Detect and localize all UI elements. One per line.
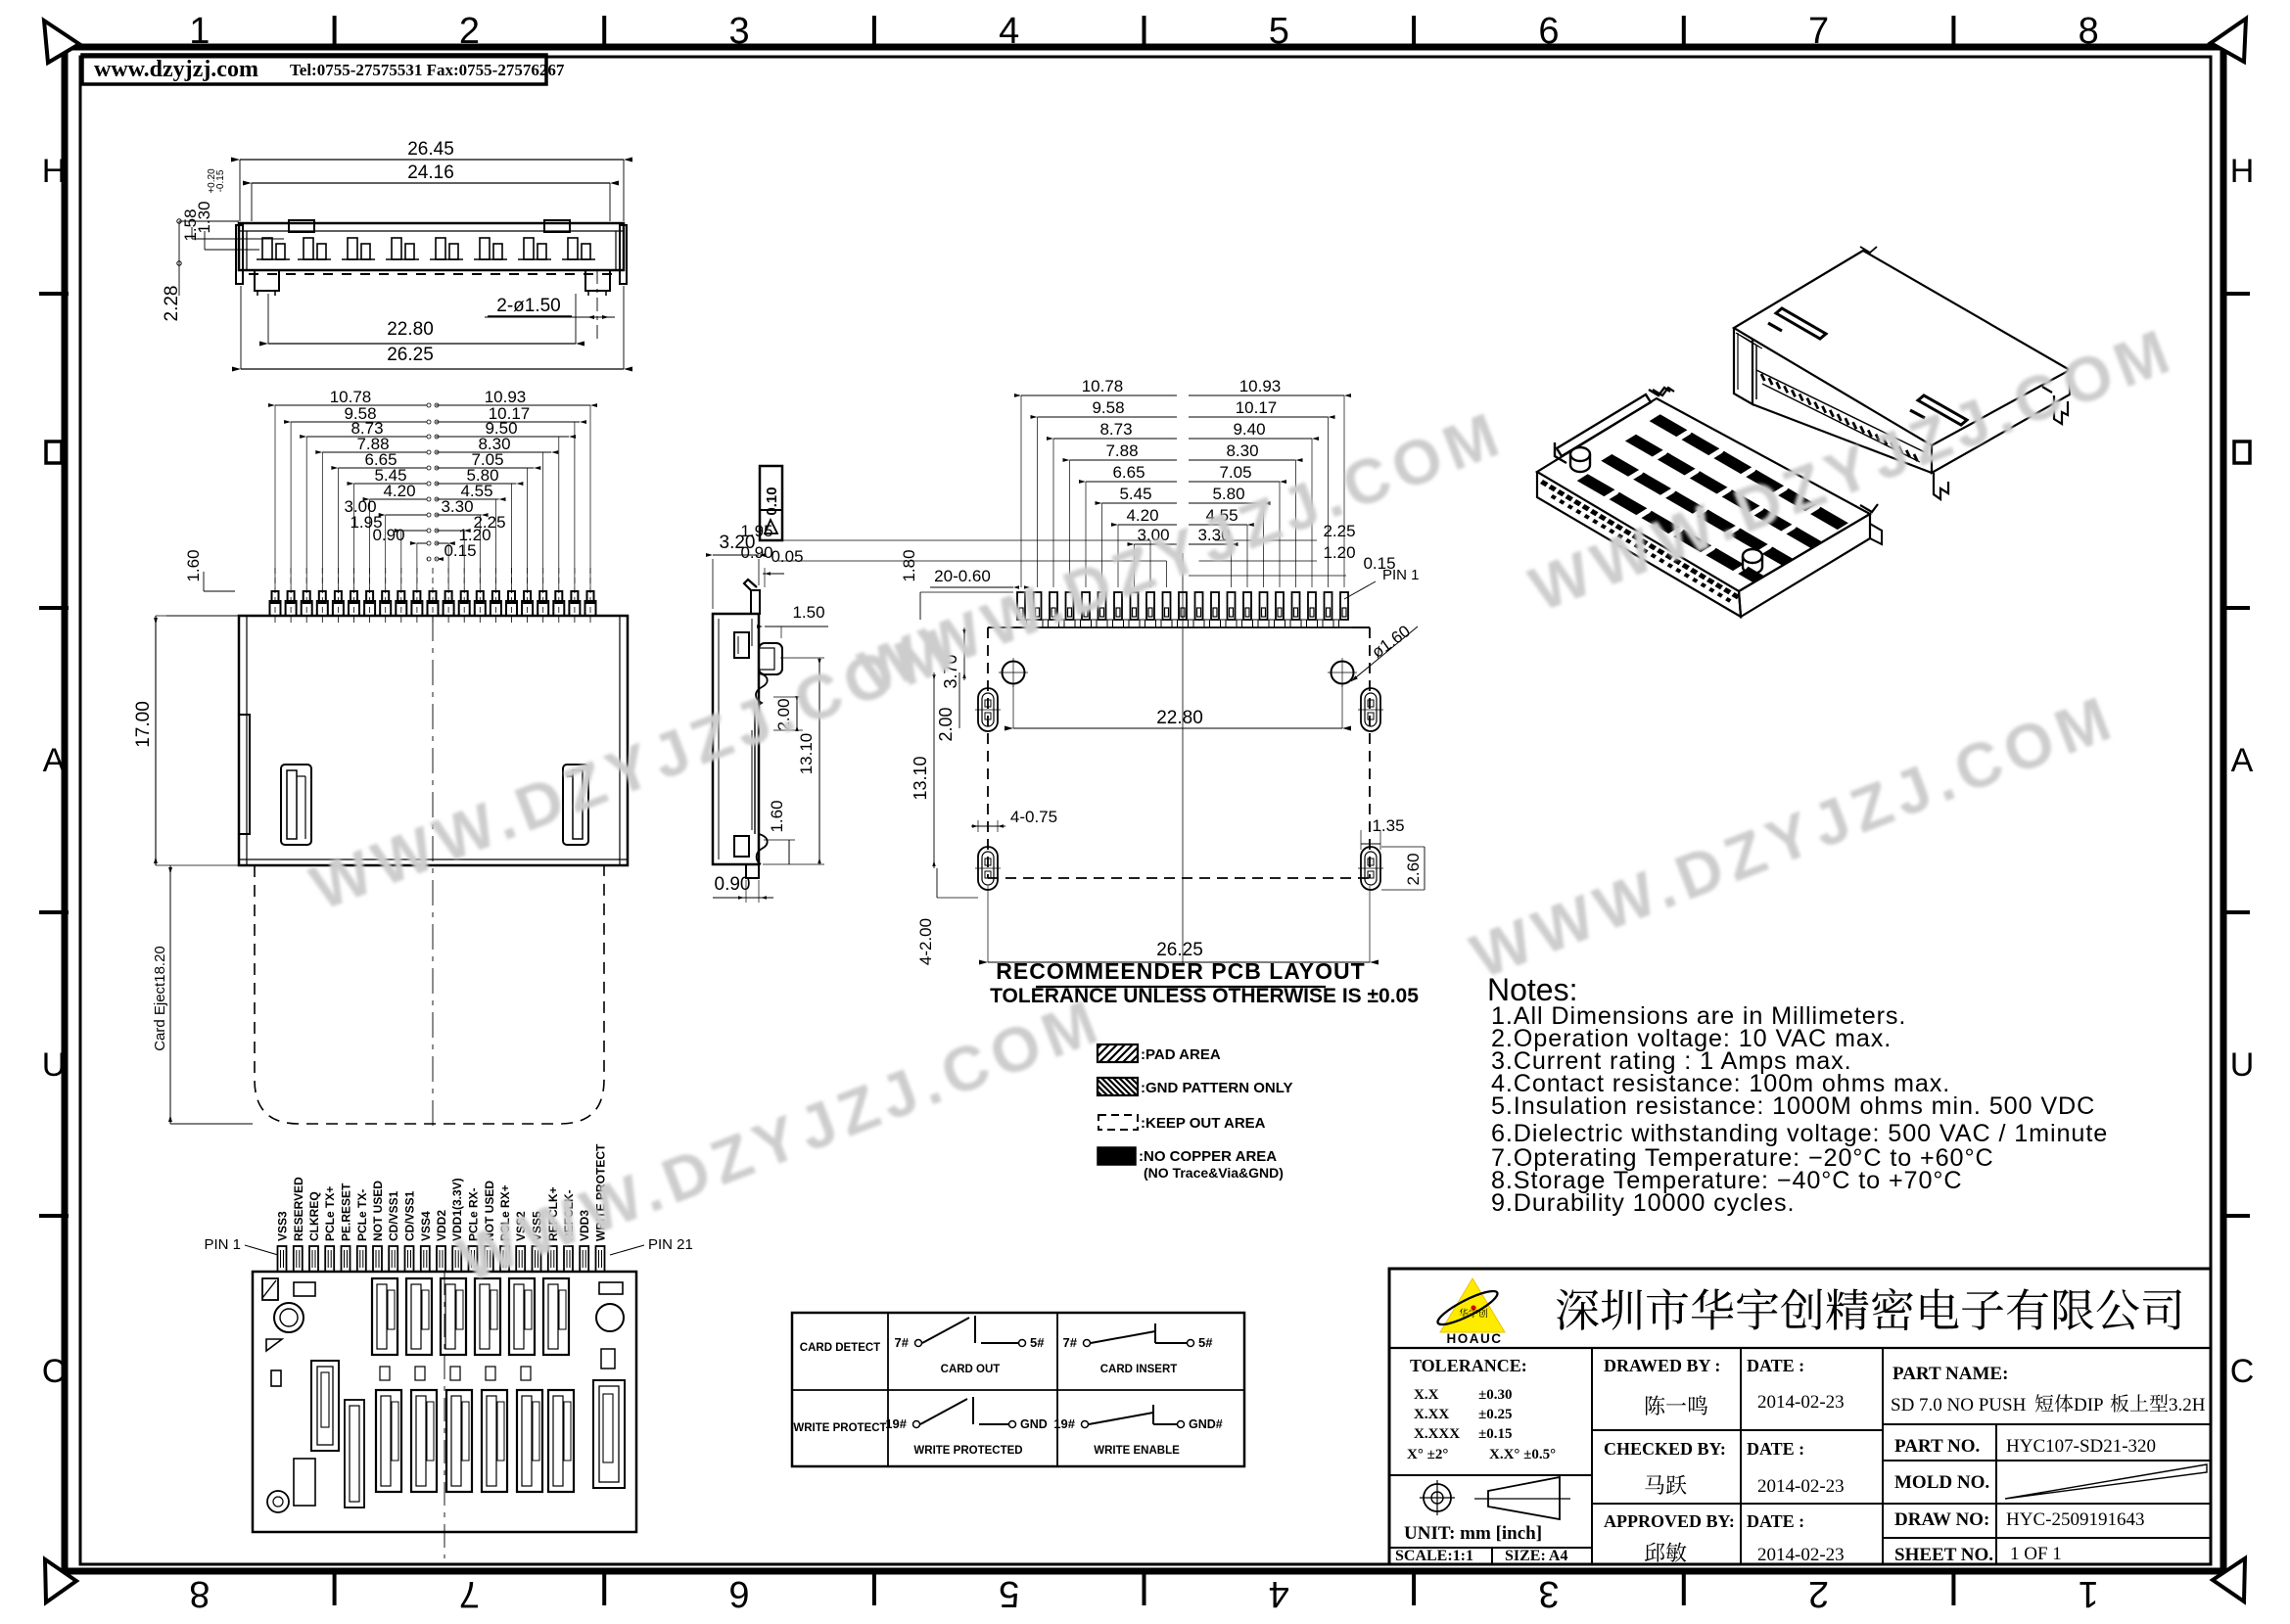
svg-text:1.30: 1.30 bbox=[195, 201, 213, 233]
svg-text:0.90: 0.90 bbox=[715, 874, 751, 895]
svg-text:1.20: 1.20 bbox=[1323, 543, 1355, 562]
svg-text::KEEP OUT AREA: :KEEP OUT AREA bbox=[1141, 1115, 1266, 1132]
svg-text:A: A bbox=[2231, 742, 2254, 779]
svg-text:4: 4 bbox=[1269, 1573, 1289, 1614]
svg-text:DATE :: DATE : bbox=[1747, 1439, 1804, 1459]
svg-text::NO COPPER AREA: :NO COPPER AREA bbox=[1139, 1148, 1277, 1165]
svg-text:2014-02-23: 2014-02-23 bbox=[1757, 1545, 1845, 1565]
svg-text:24.16: 24.16 bbox=[407, 162, 454, 183]
svg-text:VSS3: VSS3 bbox=[276, 1211, 290, 1241]
svg-text:0.10: 0.10 bbox=[764, 487, 780, 515]
svg-text:PE.RESET: PE.RESET bbox=[340, 1183, 353, 1241]
svg-text:8.30: 8.30 bbox=[1226, 441, 1258, 460]
svg-text:3.30: 3.30 bbox=[441, 497, 473, 516]
svg-text:X.X: X.X bbox=[1414, 1387, 1439, 1403]
svg-text:HYC107-SD21-320: HYC107-SD21-320 bbox=[2006, 1436, 2156, 1457]
svg-text:9.Durability 10000 cycles.: 9.Durability 10000 cycles. bbox=[1491, 1189, 1795, 1217]
svg-text:±0.15: ±0.15 bbox=[1478, 1426, 1512, 1442]
svg-text::PAD AREA: :PAD AREA bbox=[1141, 1046, 1221, 1063]
svg-text:20-0.60: 20-0.60 bbox=[934, 567, 991, 585]
svg-text:CD/VSS1: CD/VSS1 bbox=[387, 1190, 400, 1241]
svg-text:13.10: 13.10 bbox=[911, 756, 930, 800]
svg-text:PIN 21: PIN 21 bbox=[648, 1236, 693, 1253]
svg-text:5.45: 5.45 bbox=[1119, 485, 1151, 503]
svg-text:HYC-2509191643: HYC-2509191643 bbox=[2006, 1509, 2144, 1530]
svg-text:1.60: 1.60 bbox=[768, 800, 786, 832]
svg-text:3: 3 bbox=[1538, 1573, 1559, 1614]
svg-text:PART NO.: PART NO. bbox=[1894, 1436, 1980, 1457]
svg-text:2: 2 bbox=[459, 11, 480, 52]
svg-text:www.dzyjzj.com: www.dzyjzj.com bbox=[94, 57, 258, 82]
svg-text:WRITE PROTECTED: WRITE PROTECTED bbox=[913, 1445, 1022, 1457]
svg-text:7: 7 bbox=[1808, 11, 1829, 52]
svg-text::GND PATTERN ONLY: :GND PATTERN ONLY bbox=[1141, 1080, 1293, 1096]
svg-text:X.XXX: X.XXX bbox=[1414, 1426, 1460, 1442]
svg-text:(NO Trace&Via&GND): (NO Trace&Via&GND) bbox=[1144, 1165, 1284, 1181]
svg-text:17.00: 17.00 bbox=[133, 701, 154, 748]
svg-text:PCLe TX+: PCLe TX+ bbox=[323, 1186, 337, 1241]
svg-text:3: 3 bbox=[729, 11, 750, 52]
svg-text:VSS4: VSS4 bbox=[419, 1211, 433, 1241]
svg-text:CHECKED BY:: CHECKED BY: bbox=[1604, 1439, 1726, 1459]
svg-text:±0.25: ±0.25 bbox=[1478, 1407, 1512, 1422]
svg-text:26.25: 26.25 bbox=[1156, 940, 1203, 960]
svg-text:1.60: 1.60 bbox=[184, 549, 203, 581]
svg-text:PIN 1: PIN 1 bbox=[204, 1236, 241, 1253]
svg-text:1.35: 1.35 bbox=[1372, 816, 1404, 835]
svg-text:CD/VSS1: CD/VSS1 bbox=[403, 1190, 417, 1241]
svg-text:6.65: 6.65 bbox=[1112, 463, 1145, 482]
svg-text:1.50: 1.50 bbox=[792, 603, 824, 622]
svg-text:WRITE PROTECT: WRITE PROTECT bbox=[793, 1422, 886, 1434]
svg-text:HOAUC: HOAUC bbox=[1447, 1331, 1503, 1346]
svg-text:CLKREQ: CLKREQ bbox=[307, 1191, 321, 1241]
svg-text:3.2H: 3.2H bbox=[2169, 1395, 2206, 1415]
svg-text:VDD2: VDD2 bbox=[435, 1210, 448, 1241]
svg-text:9.58: 9.58 bbox=[1092, 398, 1124, 417]
svg-text:DRAWED BY :: DRAWED BY : bbox=[1604, 1356, 1720, 1375]
svg-text:H: H bbox=[42, 153, 67, 190]
svg-text:C: C bbox=[2230, 1353, 2255, 1390]
svg-text:Tel:0755-27575531 Fax:0755-27: Tel:0755-27575531 Fax:0755-27576267 bbox=[290, 61, 565, 79]
svg-text:4-0.75: 4-0.75 bbox=[1010, 808, 1057, 826]
svg-text:0.90: 0.90 bbox=[740, 543, 772, 562]
svg-text:C: C bbox=[42, 1353, 67, 1390]
svg-text:10.93: 10.93 bbox=[1239, 377, 1282, 395]
svg-text:5: 5 bbox=[1269, 11, 1289, 52]
svg-text:0.05: 0.05 bbox=[771, 547, 803, 566]
svg-text:7: 7 bbox=[459, 1573, 480, 1614]
svg-text:-0.15: -0.15 bbox=[215, 169, 226, 192]
svg-text:8.73: 8.73 bbox=[1099, 420, 1132, 439]
svg-text:8: 8 bbox=[2079, 11, 2099, 52]
svg-text:TOLERANCE:: TOLERANCE: bbox=[1410, 1356, 1527, 1375]
svg-text:7.88: 7.88 bbox=[1105, 441, 1138, 460]
svg-text:UNIT: mm [inch]: UNIT: mm [inch] bbox=[1404, 1523, 1542, 1544]
svg-text:PCLe TX-: PCLe TX- bbox=[355, 1189, 369, 1241]
svg-text:CARD OUT: CARD OUT bbox=[941, 1364, 1001, 1375]
svg-text:4: 4 bbox=[999, 11, 1019, 52]
svg-text:X° ±2°: X° ±2° bbox=[1407, 1447, 1448, 1462]
svg-text:CARD DETECT: CARD DETECT bbox=[800, 1342, 880, 1354]
svg-text:GND#: GND# bbox=[1189, 1417, 1223, 1431]
svg-text:1 OF 1: 1 OF 1 bbox=[2010, 1544, 2062, 1564]
svg-text:1: 1 bbox=[2079, 1573, 2099, 1614]
svg-text:SCALE:1:1: SCALE:1:1 bbox=[1395, 1548, 1473, 1564]
svg-text:Card Eject18.20: Card Eject18.20 bbox=[152, 946, 168, 1051]
svg-text:7.05: 7.05 bbox=[1219, 463, 1251, 482]
svg-text:RESERVED: RESERVED bbox=[292, 1177, 305, 1241]
svg-text:H: H bbox=[2230, 153, 2255, 190]
svg-text:DRAW NO:: DRAW NO: bbox=[1894, 1509, 1989, 1530]
svg-text:APPROVED BY:: APPROVED BY: bbox=[1604, 1511, 1735, 1531]
svg-text:U: U bbox=[2230, 1046, 2255, 1084]
svg-text:6: 6 bbox=[1538, 11, 1559, 52]
svg-text:26.45: 26.45 bbox=[407, 139, 454, 160]
svg-text:PIN 1: PIN 1 bbox=[1382, 567, 1420, 583]
svg-text:RECOMMEENDER PCB LAYOUT: RECOMMEENDER PCB LAYOUT bbox=[996, 958, 1365, 984]
svg-text:10.78: 10.78 bbox=[1082, 377, 1124, 395]
svg-text:WRITE ENABLE: WRITE ENABLE bbox=[1094, 1445, 1180, 1457]
svg-text:5: 5 bbox=[999, 1573, 1019, 1614]
svg-text:A: A bbox=[43, 742, 66, 779]
svg-text:DATE :: DATE : bbox=[1747, 1356, 1804, 1375]
svg-text:2014-02-23: 2014-02-23 bbox=[1757, 1476, 1845, 1497]
svg-text:26.25: 26.25 bbox=[387, 345, 434, 365]
svg-text:X.XX: X.XX bbox=[1414, 1407, 1449, 1422]
svg-text:2014-02-23: 2014-02-23 bbox=[1757, 1392, 1845, 1413]
svg-text:7#: 7# bbox=[1063, 1335, 1078, 1350]
svg-text:CARD INSERT: CARD INSERT bbox=[1100, 1364, 1178, 1375]
svg-text:10.17: 10.17 bbox=[1236, 398, 1278, 417]
svg-text:2: 2 bbox=[1808, 1573, 1829, 1614]
svg-text:2.60: 2.60 bbox=[1404, 853, 1423, 885]
svg-text:22.80: 22.80 bbox=[1156, 708, 1203, 728]
svg-text:8: 8 bbox=[189, 1573, 210, 1614]
svg-text:5.Insulation resistance: 100: 5.Insulation resistance: 1000M ohms min.… bbox=[1491, 1092, 2095, 1120]
svg-text:6.Dielectric withstanding vo: 6.Dielectric withstanding voltage: 500 V… bbox=[1491, 1120, 2108, 1147]
svg-text:MOLD NO.: MOLD NO. bbox=[1894, 1472, 1989, 1493]
svg-text:1.95: 1.95 bbox=[740, 522, 772, 540]
svg-text:DIP: DIP bbox=[2074, 1395, 2104, 1415]
svg-text:1: 1 bbox=[189, 11, 210, 52]
svg-text:6: 6 bbox=[728, 1573, 749, 1614]
svg-text:±0.30: ±0.30 bbox=[1478, 1387, 1512, 1403]
svg-text:SHEET NO.: SHEET NO. bbox=[1894, 1545, 1993, 1565]
svg-text:U: U bbox=[42, 1046, 67, 1084]
svg-text:22.80: 22.80 bbox=[387, 319, 434, 340]
svg-text:7#: 7# bbox=[895, 1335, 910, 1350]
svg-text:5#: 5# bbox=[1198, 1335, 1213, 1350]
svg-text:PART NAME:: PART NAME: bbox=[1893, 1364, 2008, 1384]
svg-text:SIZE: A4: SIZE: A4 bbox=[1505, 1548, 1567, 1564]
svg-text:5#: 5# bbox=[1030, 1335, 1045, 1350]
svg-text:GND: GND bbox=[1020, 1417, 1048, 1431]
svg-text:4.20: 4.20 bbox=[1126, 506, 1158, 525]
svg-text:DATE :: DATE : bbox=[1747, 1511, 1804, 1531]
svg-text:2.00: 2.00 bbox=[936, 707, 956, 741]
svg-text:0.90: 0.90 bbox=[372, 526, 404, 544]
svg-text:2-ø1.50: 2-ø1.50 bbox=[496, 296, 560, 316]
svg-text:4.20: 4.20 bbox=[383, 482, 415, 500]
svg-text:SD 7.0 NO PUSH: SD 7.0 NO PUSH bbox=[1891, 1395, 2027, 1415]
svg-text:1.80: 1.80 bbox=[900, 549, 918, 581]
svg-text:19#: 19# bbox=[1053, 1416, 1075, 1431]
svg-text:X.X° ±0.5°: X.X° ±0.5° bbox=[1489, 1447, 1556, 1462]
svg-text:19#: 19# bbox=[885, 1416, 907, 1431]
svg-text:4-2.00: 4-2.00 bbox=[916, 918, 935, 965]
svg-text:9.40: 9.40 bbox=[1233, 420, 1265, 439]
svg-text:NOT USED: NOT USED bbox=[371, 1181, 385, 1241]
